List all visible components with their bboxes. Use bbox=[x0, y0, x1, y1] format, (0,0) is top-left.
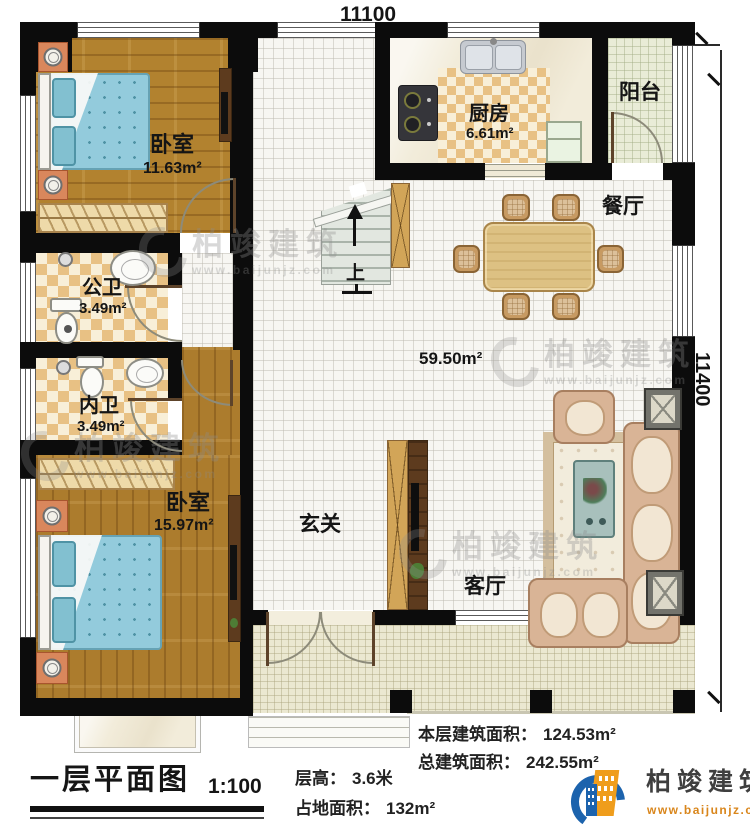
wardrobe-top bbox=[38, 203, 168, 233]
window-left-private-bath bbox=[20, 368, 36, 446]
wall-right-upper bbox=[672, 180, 695, 245]
bedroom-top-door-leaf bbox=[233, 178, 236, 233]
bay-window bbox=[75, 710, 200, 752]
stat-footprint-value: 132m² bbox=[386, 799, 435, 818]
room-area-kitchen: 6.61m² bbox=[466, 126, 514, 141]
room-label-bedroom-bottom: 卧室 bbox=[166, 492, 210, 514]
sink-icon bbox=[126, 358, 164, 388]
dining-chair bbox=[552, 194, 580, 221]
pillow bbox=[52, 126, 76, 166]
room-label-bedroom-top: 卧室 bbox=[150, 134, 194, 156]
nightstand bbox=[36, 500, 68, 532]
stairs-up-label: 上 bbox=[346, 264, 365, 283]
wall-balcony-left bbox=[592, 22, 608, 180]
shoe-cabinet bbox=[387, 440, 408, 610]
stat-total-area-label: 总建筑面积： bbox=[418, 753, 520, 772]
wall-bottom-entry-left bbox=[240, 610, 268, 625]
dimension-tick bbox=[707, 73, 720, 86]
side-table bbox=[646, 570, 684, 616]
cushion bbox=[565, 400, 605, 436]
window-balcony-right bbox=[672, 45, 695, 163]
bed-headboard bbox=[38, 73, 51, 170]
tv-icon bbox=[221, 92, 228, 134]
stat-height-label: 层高： bbox=[295, 769, 346, 788]
window-top-kitchen bbox=[447, 22, 540, 38]
coffee-table bbox=[573, 460, 615, 538]
wall-kitchen-bottom-left bbox=[375, 163, 485, 180]
kitchen-sink-icon bbox=[460, 40, 526, 74]
column-top-right bbox=[672, 22, 695, 45]
stove-knob bbox=[427, 122, 431, 126]
wall-bedroom-top-bottom bbox=[20, 233, 180, 253]
dimension-tick bbox=[707, 691, 720, 704]
window-left-bedroom-top bbox=[20, 95, 36, 212]
burner-icon bbox=[404, 92, 421, 109]
wall-kitchen-bottom-right bbox=[545, 163, 592, 180]
entry-door-left-leaf bbox=[266, 612, 269, 666]
dining-chair bbox=[552, 293, 580, 320]
plan-scale: 1:100 bbox=[208, 776, 262, 797]
porch-pillar-1 bbox=[390, 690, 412, 713]
toilet-drain bbox=[64, 325, 72, 333]
porch-pillar-2 bbox=[530, 690, 552, 713]
dimension-tick bbox=[695, 32, 708, 45]
burner-icon bbox=[404, 116, 421, 133]
bath-nook-floor bbox=[182, 253, 233, 347]
room-area-bedroom-top: 11.63m² bbox=[143, 161, 202, 177]
stat-floor-area: 本层建筑面积：124.53m² bbox=[418, 720, 616, 745]
wall-bottom-bedroom bbox=[20, 698, 253, 716]
window-left-public-bath bbox=[20, 262, 36, 346]
dining-table bbox=[483, 222, 595, 292]
dining-chair bbox=[597, 245, 624, 273]
room-label-balcony: 阳台 bbox=[619, 82, 661, 103]
pillow bbox=[52, 597, 76, 643]
cushion bbox=[540, 592, 578, 638]
lamp-icon bbox=[43, 659, 62, 678]
sink-basin bbox=[495, 45, 522, 70]
shower-icon bbox=[58, 252, 73, 267]
flower-decor bbox=[583, 478, 607, 506]
room-label-public-bath: 公卫 bbox=[82, 278, 122, 298]
room-label-entry: 玄关 bbox=[299, 514, 341, 535]
cushion bbox=[631, 504, 673, 562]
sink-basin bbox=[136, 366, 158, 383]
brand-name: 柏竣建筑 bbox=[646, 770, 750, 795]
sink-basin bbox=[465, 45, 493, 70]
wall-bedroom-bottom-right bbox=[240, 347, 253, 610]
stat-height: 层高：3.6米 bbox=[295, 764, 393, 789]
plant-icon bbox=[230, 618, 238, 628]
title-underline-thin bbox=[30, 817, 264, 819]
brand-website: www.baijunjz.com bbox=[647, 804, 750, 816]
pillow bbox=[52, 541, 76, 587]
hall-upper-floor bbox=[253, 38, 375, 180]
private-bath-door-leaf bbox=[128, 398, 182, 401]
room-label-living: 客厅 bbox=[464, 576, 506, 597]
stair-arrow-stem bbox=[353, 216, 356, 246]
dining-chair bbox=[502, 293, 530, 320]
table-dot bbox=[586, 518, 593, 525]
shower-icon bbox=[56, 360, 71, 375]
room-area-private-bath: 3.49m² bbox=[77, 419, 125, 434]
bed-headboard bbox=[38, 535, 51, 650]
cushion bbox=[631, 436, 673, 494]
window-left-bedroom-bottom bbox=[20, 478, 36, 638]
room-label-dining: 餐厅 bbox=[602, 196, 644, 217]
wall-nook-right bbox=[233, 250, 253, 350]
stat-footprint-label: 占地面积： bbox=[295, 799, 380, 818]
lamp-icon bbox=[43, 507, 62, 526]
floor-plan-canvas: 11100 11400 bbox=[0, 0, 750, 836]
brand-logo-icon bbox=[566, 764, 642, 830]
toilet-icon bbox=[55, 312, 78, 344]
pillow bbox=[52, 78, 76, 118]
dimension-height-label: 11400 bbox=[692, 352, 712, 407]
cushion bbox=[582, 592, 620, 638]
faucet-icon bbox=[490, 38, 497, 45]
title-underline-thick bbox=[30, 806, 264, 812]
fridge-icon bbox=[546, 121, 582, 163]
armchair bbox=[553, 390, 615, 444]
toilet-tank bbox=[50, 298, 82, 312]
fridge-divider bbox=[548, 138, 580, 140]
wall-bottom-entry-right bbox=[373, 610, 455, 625]
stat-footprint: 占地面积：132m² bbox=[295, 794, 435, 819]
wall-private-bath-right bbox=[168, 358, 182, 400]
wall-balcony-bottom-right bbox=[663, 163, 695, 180]
wall-balcony-bottom-left bbox=[592, 163, 612, 180]
room-label-private-bath: 内卫 bbox=[79, 396, 119, 416]
wall-entry-left bbox=[240, 610, 253, 716]
lamp-icon bbox=[44, 176, 63, 195]
wardrobe-bottom bbox=[38, 458, 175, 490]
nightstand bbox=[38, 42, 68, 72]
stat-height-value: 3.6米 bbox=[352, 769, 393, 788]
sofa-bottom bbox=[528, 578, 628, 648]
stat-floor-area-label: 本层建筑面积： bbox=[418, 725, 537, 744]
bedroom-bottom-door-leaf bbox=[230, 360, 233, 406]
entry-steps bbox=[248, 716, 410, 748]
stove-icon bbox=[398, 85, 438, 141]
lamp-icon bbox=[44, 48, 63, 67]
dining-chair bbox=[453, 245, 480, 273]
side-table bbox=[644, 388, 682, 430]
stove-knob bbox=[427, 98, 431, 102]
dining-chair bbox=[502, 194, 530, 221]
kitchen-threshold bbox=[485, 164, 545, 178]
room-area-bedroom-bottom: 15.97m² bbox=[154, 518, 214, 534]
wall-kitchen-left bbox=[375, 22, 390, 180]
wall-public-bath-right bbox=[168, 253, 182, 287]
balcony-door-leaf bbox=[611, 112, 614, 163]
tv-icon bbox=[411, 483, 419, 551]
table-dot bbox=[599, 518, 606, 525]
tv-icon bbox=[230, 545, 237, 600]
hall-area-label: 59.50m² bbox=[419, 350, 482, 367]
room-label-kitchen: 厨房 bbox=[469, 104, 509, 124]
window-right-dining bbox=[672, 245, 695, 337]
window-top-bedroom bbox=[77, 22, 200, 38]
sink-basin bbox=[121, 259, 149, 280]
plan-title: 一层平面图 bbox=[30, 766, 190, 795]
nightstand bbox=[38, 170, 68, 200]
stair-arrow-head bbox=[347, 204, 363, 219]
porch-pillar-3 bbox=[673, 690, 695, 713]
room-area-public-bath: 3.49m² bbox=[79, 301, 127, 316]
nightstand bbox=[36, 652, 68, 684]
stat-floor-area-value: 124.53m² bbox=[543, 725, 616, 744]
brand-logo: 柏竣建筑 www.baijunjz.com bbox=[566, 764, 746, 830]
entry-door-right-leaf bbox=[372, 612, 375, 666]
window-top-hall bbox=[277, 22, 390, 38]
stair-partition bbox=[391, 183, 410, 268]
dimension-line-right bbox=[720, 50, 722, 712]
toilet-icon bbox=[80, 366, 104, 398]
stair-marker-tick bbox=[355, 284, 358, 292]
